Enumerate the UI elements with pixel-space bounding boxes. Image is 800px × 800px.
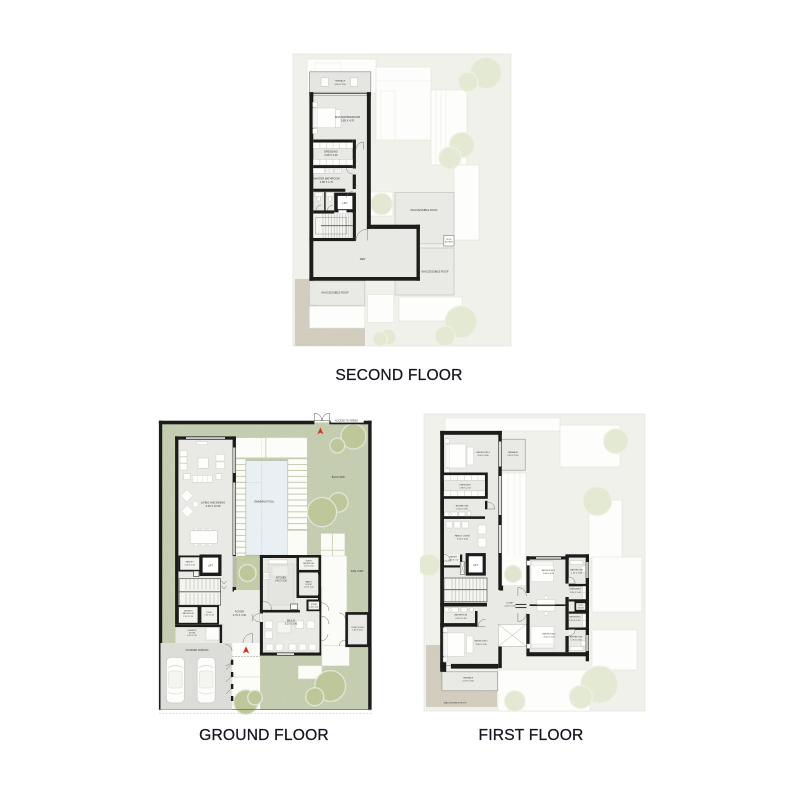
svg-text:LOBBY: LOBBY [506, 602, 514, 604]
svg-text:INACCESSIBLE ROOF: INACCESSIBLE ROOF [421, 269, 449, 273]
svg-text:DRESSING: DRESSING [569, 589, 581, 591]
svg-text:DRESSING: DRESSING [459, 485, 471, 487]
svg-text:1.70 X 2.80: 1.70 X 2.80 [570, 640, 582, 642]
svg-text:BACKYARD: BACKYARD [332, 476, 345, 479]
svg-text:TERRACE: TERRACE [335, 80, 346, 83]
svg-text:BATHROOM: BATHROOM [570, 568, 583, 571]
svg-text:BATHROOM: BATHROOM [303, 562, 314, 565]
svg-text:1.55 X 1.40: 1.55 X 1.40 [570, 592, 582, 594]
svg-text:BELOW: BELOW [578, 608, 585, 610]
svg-text:1.00 X 1.00: 1.00 X 1.00 [309, 606, 318, 608]
svg-text:LIFT: LIFT [342, 201, 348, 205]
svg-text:INACCESSIBLE ROOF: INACCESSIBLE ROOF [444, 701, 468, 704]
svg-text:2.20 X 2.80: 2.20 X 2.80 [504, 605, 516, 607]
svg-text:TERRACE: TERRACE [508, 451, 519, 454]
svg-text:DRESSING: DRESSING [324, 150, 338, 154]
svg-text:DRESSING: DRESSING [569, 617, 581, 619]
svg-text:3.20 X 1.95: 3.20 X 1.95 [187, 635, 197, 637]
svg-text:BEDROOM 1: BEDROOM 1 [475, 641, 489, 643]
svg-text:PANTRY: PANTRY [450, 556, 458, 559]
svg-text:1.80 X 3.50: 1.80 X 3.50 [352, 630, 363, 632]
svg-text:4.85 X 1.70: 4.85 X 1.70 [320, 180, 334, 184]
svg-text:1.55 X 1.40: 1.55 X 1.40 [569, 620, 581, 622]
svg-text:ACCESS TO GREEN: ACCESS TO GREEN [335, 420, 358, 423]
svg-text:3.45 X 4.20: 3.45 X 4.20 [543, 637, 555, 639]
svg-text:TERRACE: TERRACE [463, 676, 474, 679]
svg-text:5.10 X 3.80: 5.10 X 3.80 [285, 623, 298, 626]
svg-text:2.00 X 1.30: 2.00 X 1.30 [449, 559, 459, 561]
svg-text:SIDE YARD: SIDE YARD [351, 570, 364, 573]
svg-text:2.95 X 2.20: 2.95 X 2.20 [324, 153, 338, 157]
svg-text:LIVING AND DINING: LIVING AND DINING [201, 500, 225, 504]
svg-text:BATHROOM: BATHROOM [455, 614, 468, 617]
svg-text:MAID'S: MAID'S [305, 580, 312, 583]
svg-text:BATHROOM: BATHROOM [183, 612, 194, 615]
svg-text:MEP: MEP [360, 257, 366, 261]
svg-text:2.00 X 1.30: 2.00 X 1.30 [185, 564, 196, 566]
svg-text:INACCESSIBLE ROOF: INACCESSIBLE ROOF [321, 291, 349, 295]
svg-text:BEDROOM 3: BEDROOM 3 [542, 570, 556, 572]
svg-text:SWIMMING POOL: SWIMMING POOL [254, 500, 275, 503]
svg-text:LIFT: LIFT [208, 564, 214, 568]
svg-text:COVERED PARKING: COVERED PARKING [185, 649, 208, 652]
svg-text:2.70 X 1.80: 2.70 X 1.80 [462, 681, 474, 683]
svg-text:KITCHEN: KITCHEN [276, 577, 286, 579]
svg-text:3.25 X 10.90: 3.25 X 10.90 [206, 504, 221, 508]
svg-text:1.70 X 2.80: 1.70 X 2.80 [571, 573, 583, 575]
svg-text:2.05 X 1.80: 2.05 X 1.80 [456, 509, 468, 511]
svg-text:3.20 X 3.60: 3.20 X 3.60 [477, 455, 489, 457]
svg-text:BATHROOM: BATHROOM [456, 505, 469, 508]
svg-text:3.20 X 4.20: 3.20 X 4.20 [457, 539, 469, 541]
svg-text:2.50 X 3.00: 2.50 X 3.00 [507, 455, 519, 457]
svg-text:MASTER BEDROOM: MASTER BEDROOM [335, 115, 360, 119]
svg-text:1.95 X 2.20: 1.95 X 2.20 [459, 488, 471, 490]
svg-text:5.50 X 2.00: 5.50 X 2.00 [334, 84, 346, 86]
svg-text:FAMILY LIVING: FAMILY LIVING [455, 534, 471, 537]
svg-text:1.50 X 1.20: 1.50 X 1.20 [204, 615, 214, 617]
svg-text:ACCESS: ACCESS [445, 241, 454, 244]
svg-text:MASTER BATHROOM: MASTER BATHROOM [313, 177, 339, 181]
svg-text:3.85 X 4.70: 3.85 X 4.70 [341, 118, 355, 122]
svg-text:FOYER: FOYER [235, 609, 244, 613]
svg-text:1.70 X 1.50: 1.70 X 1.50 [304, 566, 314, 568]
svg-text:PANTRY: PANTRY [186, 561, 195, 564]
svg-text:1.95 X 1.20: 1.95 X 1.20 [183, 616, 193, 618]
svg-text:3.45 X 3.50: 3.45 X 3.50 [275, 580, 287, 582]
svg-text:3.30 X 3.90: 3.30 X 3.90 [475, 644, 487, 646]
svg-text:BEDROOM 4: BEDROOM 4 [476, 452, 490, 454]
svg-text:BATHROOM: BATHROOM [570, 636, 583, 639]
svg-text:2.40 X 4.20: 2.40 X 4.20 [543, 573, 555, 575]
svg-text:3.50 X 1.90: 3.50 X 1.90 [455, 618, 467, 620]
svg-text:1.70 X 2.00: 1.70 X 2.00 [304, 587, 314, 589]
svg-text:LIFT: LIFT [473, 564, 478, 567]
svg-text:2.70 X 4.40: 2.70 X 4.40 [233, 613, 247, 617]
svg-text:BEDROOM 2: BEDROOM 2 [543, 633, 557, 635]
svg-text:INACCESSIBLE ROOF: INACCESSIBLE ROOF [410, 208, 438, 212]
svg-text:PUMP ROOM: PUMP ROOM [351, 627, 364, 629]
